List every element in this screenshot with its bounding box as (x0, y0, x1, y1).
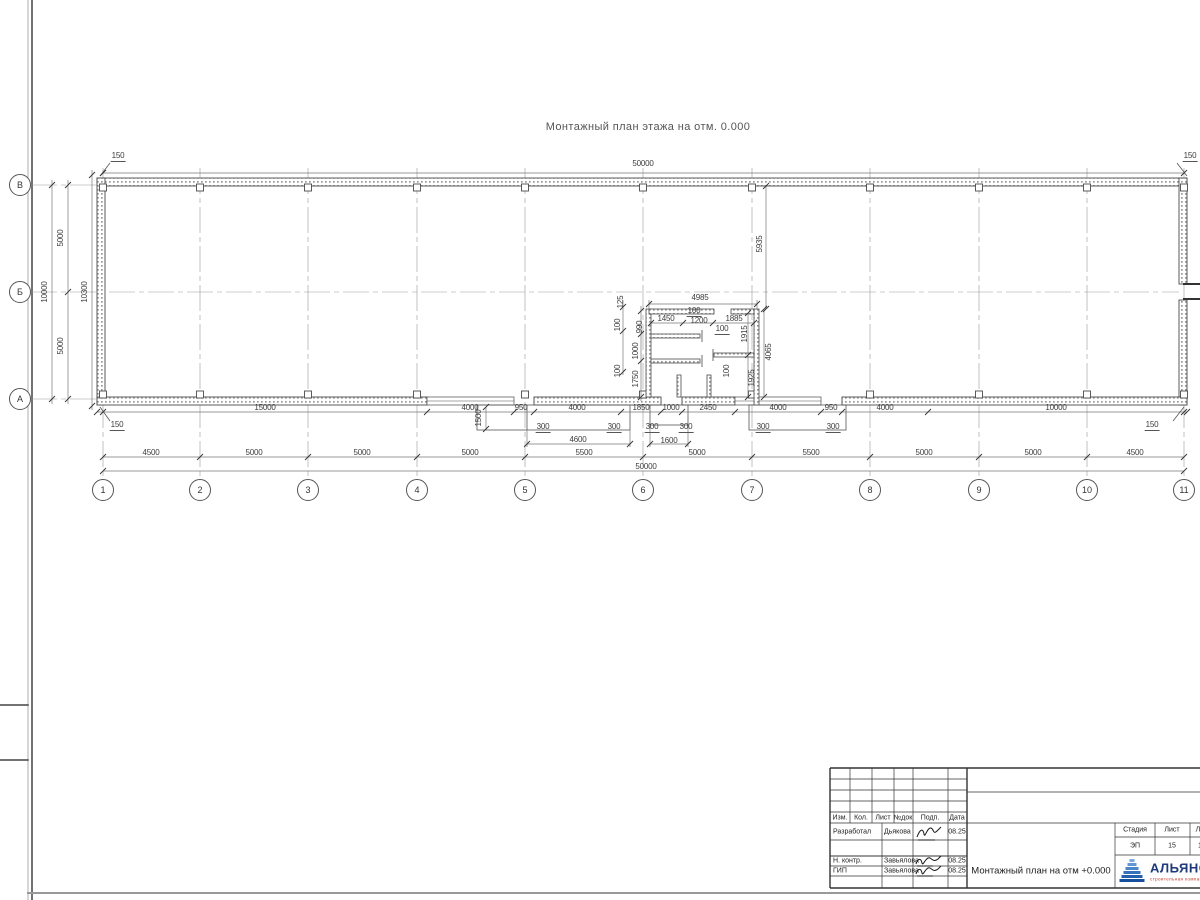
tb-row-developer-date: 08.25 (948, 829, 966, 836)
dim-label: 5935 (756, 236, 764, 253)
dim-label: 4600 (570, 436, 587, 444)
dim-label: 1885 (726, 315, 743, 323)
axis-marker: В (9, 174, 31, 196)
logo-company-name: АЛЬЯНС (1150, 861, 1200, 876)
tb-sheet-value: 15 (1168, 843, 1176, 850)
tb-header-data: Дата (949, 815, 965, 822)
dim-label: 2450 (700, 404, 717, 412)
dim-label: 5500 (576, 449, 593, 457)
axis-marker: А (9, 388, 31, 410)
dim-label: 125 (617, 296, 625, 309)
dim-label: 990 (636, 321, 644, 334)
dim-label: 10000 (1045, 404, 1066, 412)
dim-label: 1600 (661, 437, 678, 445)
sheet-frame (0, 0, 1200, 900)
drawing-canvas (0, 0, 1200, 900)
dim-label: 5000 (246, 449, 263, 457)
porches (477, 405, 846, 430)
dim-label: 4000 (569, 404, 586, 412)
dim-label: 150 (1183, 152, 1198, 162)
dim-label: 300 (645, 423, 660, 433)
dim-label: 5000 (57, 230, 65, 247)
dim-label: 300 (826, 423, 841, 433)
tb-row-ncontr-date: 08.25 (948, 858, 966, 865)
dim-label: 50000 (635, 463, 656, 471)
axis-marker: Б (9, 281, 31, 303)
dim-label: 4500 (143, 449, 160, 457)
dim-label: 5000 (916, 449, 933, 457)
dim-label: 100 (723, 365, 731, 378)
dim-label: 150 (111, 152, 126, 162)
dim-label: 4985 (692, 294, 709, 302)
dim-label: 5000 (462, 449, 479, 457)
dim-label: 1500 (475, 410, 483, 427)
dim-label: 10000 (41, 281, 49, 302)
dim-label: 100 (614, 365, 622, 378)
tb-row-developer-name: Дьякова (884, 829, 911, 836)
dim-label: 1925 (748, 370, 756, 387)
drawing-sheet: Монтажный план этажа на отм. 0.000 50000… (0, 0, 1200, 900)
dim-label: 1750 (632, 371, 640, 388)
dim-label: 300 (756, 423, 771, 433)
dim-label: 150 (1145, 421, 1160, 431)
dim-label: 150 (110, 421, 125, 431)
dim-label: 50000 (632, 160, 653, 168)
dim-label: 100 (715, 325, 730, 335)
dim-label: 15000 (254, 404, 275, 412)
tb-header-kol: Кол. (854, 815, 868, 822)
dim-label: 1450 (658, 315, 675, 323)
axis-marker: 4 (406, 479, 428, 501)
axis-marker: 1 (92, 479, 114, 501)
tb-header-izm: Изм. (833, 815, 848, 822)
dim-label: 1000 (632, 343, 640, 360)
axis-marker: 9 (968, 479, 990, 501)
tb-row-gip-name: Завьялова (884, 868, 919, 875)
dim-label: 4000 (877, 404, 894, 412)
sheet-title: Монтажный план этажа на отм. 0.000 (546, 121, 751, 133)
logo-tagline: строительная компания (1150, 877, 1200, 882)
dim-label: 300 (607, 423, 622, 433)
tb-header-ndok: №док (894, 815, 913, 822)
dim-label: 5000 (57, 338, 65, 355)
tb-row-gip-date: 08.25 (948, 868, 966, 875)
logo-triangle-icon (1120, 859, 1145, 882)
tb-row-developer-role: Разработал (833, 829, 871, 836)
tb-sheets-header: Листов (1196, 827, 1200, 834)
tb-stage-value: ЭП (1130, 843, 1140, 850)
tb-row-gip-role: ГИП (833, 868, 847, 875)
axis-marker: 2 (189, 479, 211, 501)
dim-label: 950 (825, 404, 838, 412)
tb-row-ncontr-role: Н. контр. (833, 858, 862, 865)
axis-marker: 3 (297, 479, 319, 501)
dim-label: 1200 (691, 317, 708, 325)
dim-label: 1915 (741, 326, 749, 343)
dim-label: 10300 (81, 281, 89, 302)
dim-label: 5000 (689, 449, 706, 457)
dim-label: 300 (679, 423, 694, 433)
tb-sheet-header: Лист (1164, 827, 1179, 834)
axis-marker: 5 (514, 479, 536, 501)
dim-label: 1000 (663, 404, 680, 412)
axis-marker: 7 (741, 479, 763, 501)
tb-header-list: Лист (875, 815, 890, 822)
axis-marker: 6 (632, 479, 654, 501)
dim-label: 5500 (803, 449, 820, 457)
dim-label: 1850 (633, 404, 650, 412)
tb-stage-header: Стадия (1123, 827, 1147, 834)
columns (100, 184, 1188, 398)
dim-label: 4000 (770, 404, 787, 412)
dim-label: 5000 (1025, 449, 1042, 457)
tb-row-ncontr-name: Завьялова (884, 858, 919, 865)
dim-label: 100 (614, 319, 622, 332)
tb-doc-title: Монтажный план на отм +0.000 (971, 866, 1110, 877)
axis-marker: 8 (859, 479, 881, 501)
dim-label: 4065 (765, 344, 773, 361)
dim-label: 5000 (354, 449, 371, 457)
signature-scribbles (916, 827, 941, 876)
axis-marker: 11 (1173, 479, 1195, 501)
dim-label: 300 (536, 423, 551, 433)
tb-header-podp: Подп. (921, 815, 940, 822)
dim-label: 4500 (1127, 449, 1144, 457)
dim-label: 950 (515, 404, 528, 412)
axis-marker: 10 (1076, 479, 1098, 501)
